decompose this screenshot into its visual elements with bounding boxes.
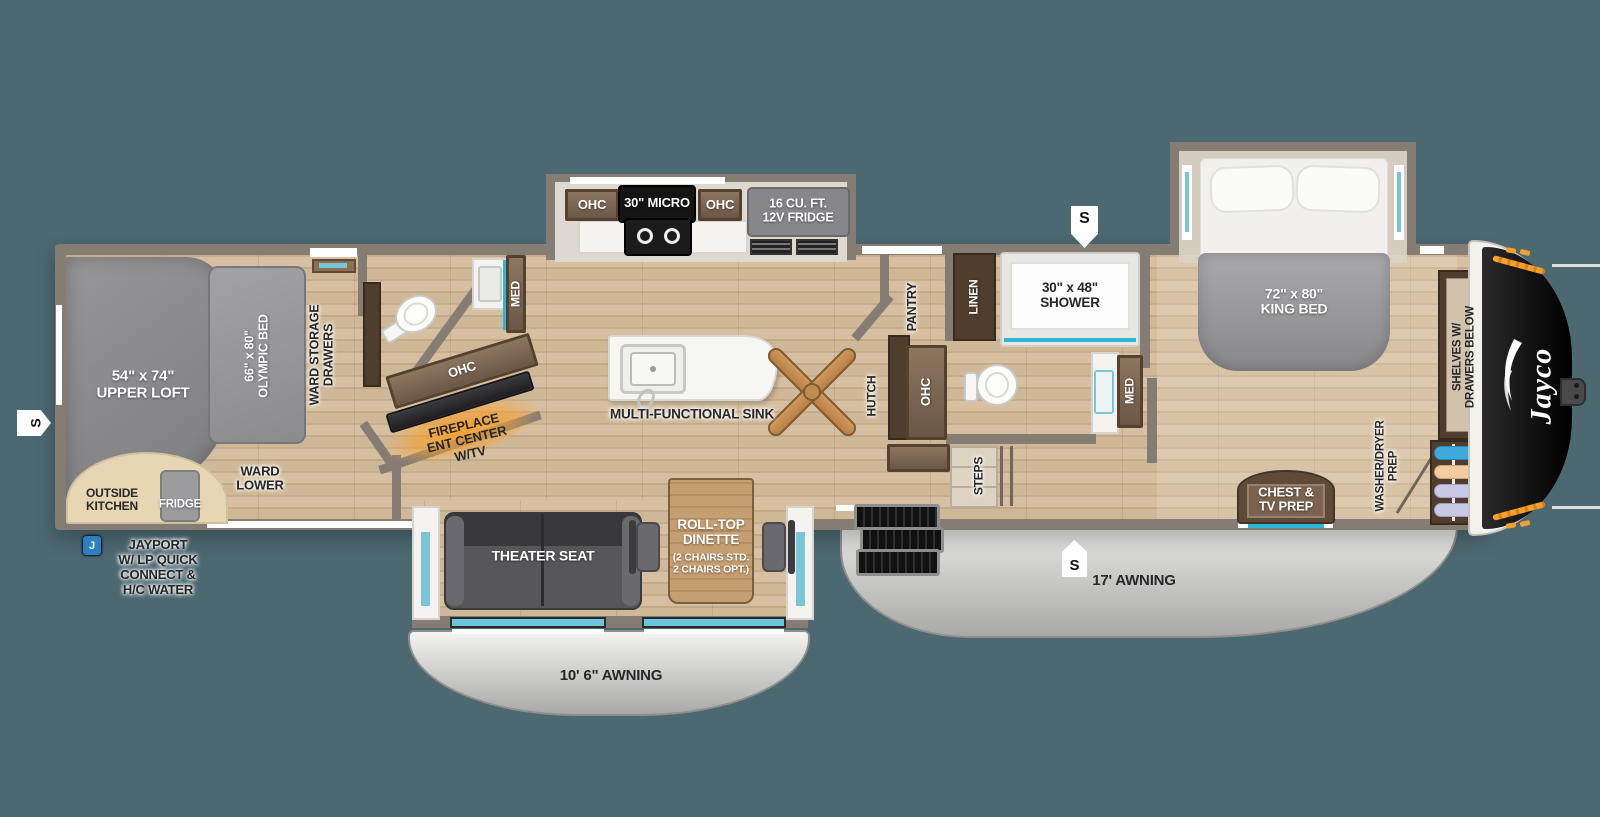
dinette-chair-left-back — [629, 520, 636, 574]
awning-106-label: 10' 6" AWNING — [560, 668, 663, 685]
cooktop — [624, 218, 692, 256]
outside-fridge-label: FRIDGE — [159, 499, 201, 512]
fridge-vent-right — [796, 239, 838, 255]
antenna-line-top — [1552, 264, 1600, 267]
living-window-sill-left — [452, 629, 604, 634]
jayport-badge: J — [83, 536, 101, 555]
jayport-badge-letter: J — [89, 540, 95, 552]
slide-badge-left-letter: S — [28, 418, 44, 427]
window-strip-garage-top — [310, 248, 357, 257]
tv-chest-accent — [1248, 524, 1324, 528]
steps-label: STEPS — [972, 457, 985, 495]
washer-dryer-label: WASHER/DRYER PREP — [1374, 420, 1399, 511]
hitch-pin-dot-1 — [1574, 383, 1579, 388]
bed-window-right-glass — [1397, 172, 1401, 232]
king-bed-pillow-left — [1209, 165, 1295, 214]
tv-chest-label: CHEST & TV PREP — [1258, 486, 1314, 515]
slide-badge-top-letter: S — [1079, 210, 1090, 228]
bed-slide-wall-left — [1170, 142, 1179, 254]
slide-badge-awning-letter: S — [1069, 557, 1079, 574]
slide-badge-top: S — [1071, 206, 1098, 248]
shower-label: 30" x 48" SHOWER — [1040, 281, 1100, 311]
burner-right — [664, 228, 680, 244]
living-window-right — [642, 617, 786, 628]
garage-wardrobe — [363, 282, 381, 387]
living-window-sill-right — [644, 629, 784, 634]
window-strip-bottom-left — [207, 521, 417, 528]
wall-shower-bedroom — [1140, 246, 1150, 368]
window-strip-cap-top — [1420, 246, 1444, 254]
wall-bath2-bottom — [946, 434, 1096, 444]
hutch-ohc-label: OHC — [919, 378, 933, 406]
theater-seat-arm-left — [446, 516, 464, 606]
kitchen-ohc-left-label: OHC — [578, 198, 606, 212]
outside-kitchen-label: OUTSIDE KITCHEN — [86, 487, 138, 513]
dinette-sub-label: (2 CHAIRS STD. 2 CHAIRS OPT.) — [673, 552, 750, 575]
roof-vent-glass — [319, 263, 347, 268]
dinette-title-label: ROLL-TOP DINETTE — [677, 518, 744, 548]
hitch-pin-dot-2 — [1574, 394, 1579, 399]
jayport-note: JAYPORT W/ LP QUICK CONNECT & H/C WATER — [118, 538, 197, 598]
burner-left — [637, 228, 653, 244]
bath1-sink — [478, 266, 502, 302]
dinette-chair-right-back — [788, 520, 795, 574]
toilet-2-bowl-inner — [985, 372, 1009, 398]
bath2-sink — [1094, 370, 1114, 414]
island-sink-label: MULTI-FUNCTIONAL SINK — [610, 408, 774, 423]
bath2-med-label: MED — [1123, 378, 1136, 404]
dinette-chair-right — [762, 522, 786, 572]
jayco-eagle-icon — [1498, 335, 1528, 421]
awning-17-label: 17' AWNING — [1092, 573, 1176, 590]
shelves-label: SHELVES W/ DRAWERS BELOW — [1451, 306, 1476, 408]
bed-slide-wall-top — [1170, 142, 1416, 151]
living-slide-end-left-glass — [421, 532, 430, 606]
hutch-label: HUTCH — [865, 376, 878, 417]
window-strip-left-wall — [56, 305, 62, 405]
kitchen-ohc-right-label: OHC — [706, 198, 734, 212]
window-strip-door-top — [862, 246, 942, 254]
ceiling-fan-hub — [803, 383, 821, 401]
kitchen-slide-wall-left — [546, 174, 555, 260]
island-faucet — [650, 366, 656, 372]
olympic-bed-label: 66" x 80" OLYMPIC BED — [243, 314, 271, 397]
fridge-vent-left — [750, 239, 792, 255]
bed-slide-wall-right — [1407, 142, 1416, 254]
steps-rail-1 — [1000, 446, 1003, 506]
dinette-chair-left — [636, 522, 660, 572]
linen-label: LINEN — [967, 279, 980, 314]
steps-rail-2 — [1010, 446, 1013, 506]
entry-cabinet — [887, 444, 950, 472]
living-slide-end-right-glass — [796, 532, 805, 606]
cap-marker-light-bottom-1 — [1506, 522, 1517, 529]
cap-marker-light-bottom-2 — [1520, 520, 1531, 527]
kitchen-micro-label: 30" MICRO — [624, 196, 690, 210]
shower-accent — [1004, 338, 1136, 342]
bath1-med-label: MED — [509, 281, 522, 307]
jayco-logo: Jayco — [1525, 348, 1558, 425]
ent-step-3 — [856, 549, 940, 576]
living-window-left — [450, 617, 606, 628]
king-bed-pillow-right — [1295, 165, 1381, 214]
rv-floor-plan: OHC 30" MICRO OHC 16 CU. FT. 12V FRIDGE … — [0, 0, 1600, 817]
antenna-line-bottom — [1552, 506, 1600, 509]
upper-loft-label: 54" x 74" UPPER LOFT — [96, 369, 189, 402]
theater-seat-label: THEATER SEAT — [492, 548, 595, 563]
ward-storage-label: WARD STORAGE DRAWERS — [308, 305, 336, 406]
wall-bath2-right — [1147, 378, 1157, 463]
cap-marker-light-top-2 — [1520, 249, 1531, 256]
bed-window-left-glass — [1185, 172, 1189, 232]
kitchen-12v-fridge-label: 16 CU. FT. 12V FRIDGE — [763, 197, 834, 225]
slide-badge-left: S — [17, 410, 51, 436]
hitch-pin — [1560, 378, 1586, 406]
outside-fridge — [160, 470, 200, 522]
pantry-label: PANTRY — [906, 283, 920, 332]
kitchen-slide-window — [570, 177, 725, 184]
king-bed-label: 72" x 80" KING BED — [1261, 287, 1328, 318]
ward-lower-label: WARD LOWER — [236, 465, 283, 494]
